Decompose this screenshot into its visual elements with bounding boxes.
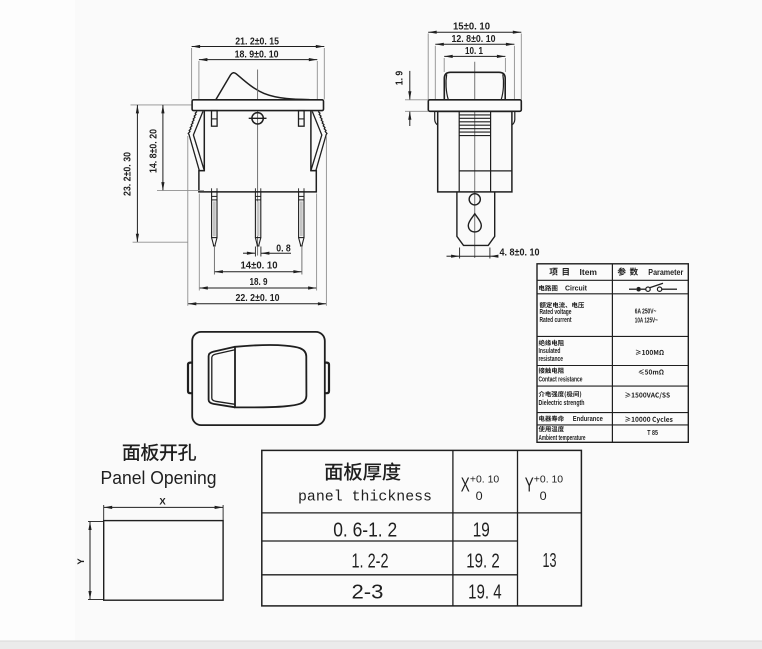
svg-text:1. 2-2: 1. 2-2 xyxy=(352,550,389,573)
svg-text:resistance: resistance xyxy=(539,356,564,363)
svg-text:19. 2: 19. 2 xyxy=(466,550,500,573)
svg-text:4. 8±0. 10: 4. 8±0. 10 xyxy=(500,246,540,258)
svg-text:18. 9: 18. 9 xyxy=(250,276,268,288)
svg-text:Ambient temperature: Ambient temperature xyxy=(539,435,586,442)
svg-text:Parameter: Parameter xyxy=(648,268,683,277)
svg-text:Endurance: Endurance xyxy=(573,414,603,423)
svg-text:Y: Y xyxy=(525,474,534,497)
svg-text:0. 6-1. 2: 0. 6-1. 2 xyxy=(333,519,397,542)
svg-text:18. 9±0. 10: 18. 9±0. 10 xyxy=(235,48,279,60)
svg-text:X: X xyxy=(461,474,470,497)
svg-text:Rated current: Rated current xyxy=(540,317,572,324)
svg-text:10A 125V~: 10A 125V~ xyxy=(635,316,658,325)
svg-text:Circuit: Circuit xyxy=(565,284,587,293)
svg-text:12. 8±0. 10: 12. 8±0. 10 xyxy=(452,33,496,45)
svg-text:2-3: 2-3 xyxy=(352,581,384,604)
svg-text:Insulated: Insulated xyxy=(539,348,561,355)
svg-text:1. 9: 1. 9 xyxy=(394,71,406,86)
svg-text:23. 2±0. 30: 23. 2±0. 30 xyxy=(122,152,134,196)
svg-text:Panel Opening: Panel Opening xyxy=(101,468,217,488)
svg-text:Item: Item xyxy=(580,268,598,277)
svg-text:X: X xyxy=(159,496,166,507)
svg-text:Y: Y xyxy=(76,558,87,565)
svg-text:10. 1: 10. 1 xyxy=(465,45,483,57)
svg-text:19. 4: 19. 4 xyxy=(468,581,502,604)
svg-text:Rated voltage: Rated voltage xyxy=(540,309,572,316)
svg-text:0: 0 xyxy=(476,489,483,503)
svg-text:+0. 10: +0. 10 xyxy=(534,475,564,486)
svg-text:14±0. 10: 14±0. 10 xyxy=(241,259,278,271)
svg-text:panel thickness: panel thickness xyxy=(298,489,432,506)
svg-text:T 85: T 85 xyxy=(647,428,658,437)
svg-text:6A 250V~: 6A 250V~ xyxy=(635,306,657,315)
svg-text:15±0. 10: 15±0. 10 xyxy=(453,21,490,33)
svg-text:22. 2±0. 10: 22. 2±0. 10 xyxy=(236,292,280,304)
svg-text:Dielectric strength: Dielectric strength xyxy=(539,400,585,407)
svg-text:14. 8±0. 20: 14. 8±0. 20 xyxy=(147,129,159,173)
svg-text:13: 13 xyxy=(543,549,557,572)
svg-text:21. 2±0. 15: 21. 2±0. 15 xyxy=(235,35,279,47)
svg-text:0: 0 xyxy=(540,489,547,503)
svg-text:19: 19 xyxy=(473,519,490,542)
svg-text:Contact resistance: Contact resistance xyxy=(539,376,583,383)
svg-text:+0. 10: +0. 10 xyxy=(470,475,500,486)
